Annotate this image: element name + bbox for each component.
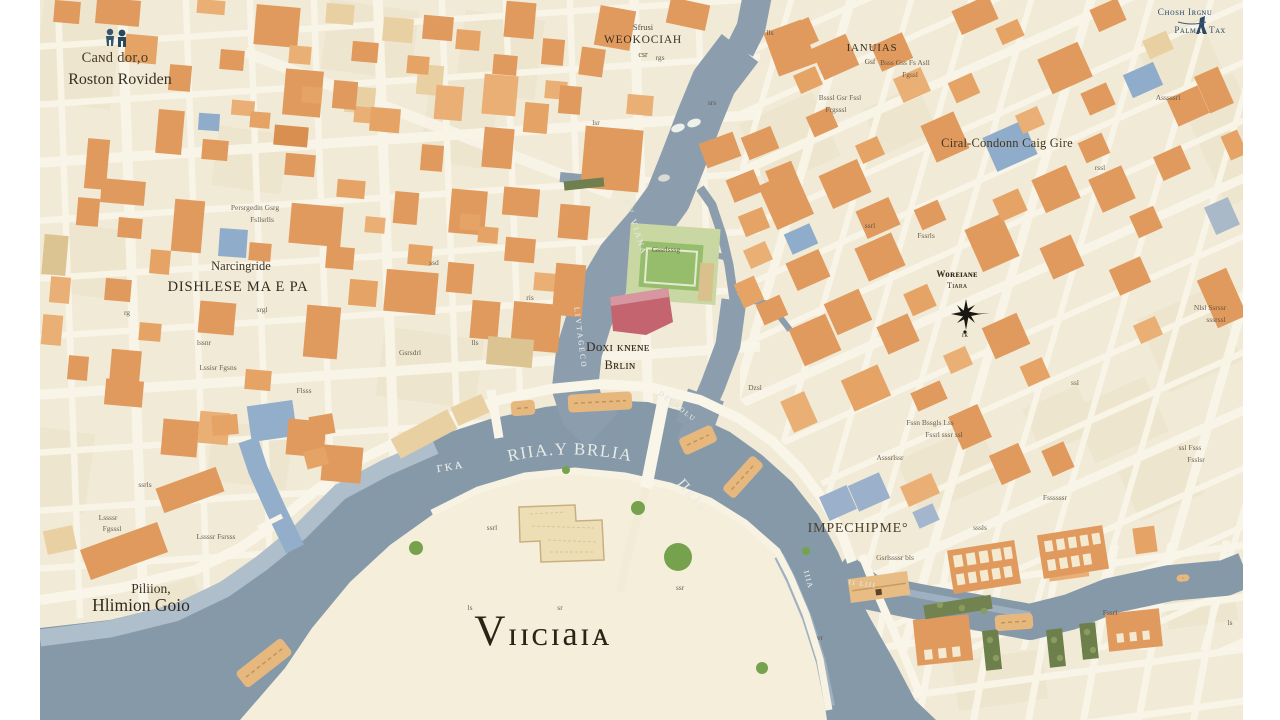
svg-text:Flsss: Flsss: [296, 386, 311, 395]
svg-text:srs: srs: [708, 98, 716, 107]
svg-text:Vɪɪᴄɪaɪᴀ: Vɪɪᴄɪaɪᴀ: [474, 608, 611, 655]
svg-text:lls: lls: [766, 28, 773, 37]
svg-text:Hlimion Goio: Hlimion Goio: [92, 595, 190, 615]
svg-text:Fssrls: Fssrls: [917, 231, 935, 240]
svg-text:Fssn Bssgls Lss: Fssn Bssgls Lss: [906, 418, 954, 427]
svg-text:ssl Fsss: ssl Fsss: [1179, 443, 1202, 452]
svg-text:Bʀʟɪɴ: Bʀʟɪɴ: [605, 358, 636, 372]
svg-text:Fssrl sssr ssl: Fssrl sssr ssl: [925, 430, 963, 439]
svg-text:ls: ls: [1227, 618, 1232, 627]
svg-text:Roston Roviden: Roston Roviden: [68, 71, 172, 88]
svg-text:ssrl: ssrl: [865, 221, 875, 230]
svg-text:Fssrl: Fssrl: [1103, 608, 1118, 617]
svg-text:Lssssr: Lssssr: [99, 513, 118, 522]
svg-text:Tɪᴀʀᴀ: Tɪᴀʀᴀ: [947, 280, 968, 290]
svg-text:Bsssl Gsr Fssl: Bsssl Gsr Fssl: [819, 93, 862, 102]
svg-text:ssrls: ssrls: [138, 480, 151, 489]
svg-text:csr: csr: [638, 50, 648, 59]
svg-text:ls: ls: [467, 603, 472, 612]
svg-text:Bsss Gss Fs Asll: Bsss Gss Fs Asll: [880, 58, 930, 67]
svg-text:sr: sr: [557, 603, 563, 612]
svg-text:Caɴd dor,o: Caɴd dor,o: [82, 50, 149, 66]
svg-text:Gssrlsssg: Gssrlsssg: [652, 245, 681, 254]
svg-text:IANUIAS: IANUIAS: [847, 42, 898, 54]
svg-text:Sfrusi: Sfrusi: [633, 22, 654, 32]
svg-text:Gsrsdrl: Gsrsdrl: [399, 348, 421, 357]
svg-text:lls: lls: [471, 338, 478, 347]
svg-text:Gsf: Gsf: [865, 57, 876, 66]
svg-text:Gsrlssssr bls: Gsrlssssr bls: [876, 553, 914, 562]
svg-text:lssnr: lssnr: [197, 338, 212, 347]
svg-text:sssls: sssls: [973, 523, 987, 532]
svg-text:Lssisr Fgsns: Lssisr Fgsns: [199, 363, 236, 372]
svg-text:Asssssrl: Asssssrl: [1156, 93, 1181, 102]
svg-text:Ciral-Condonn Caig Gire: Ciral-Condonn Caig Gire: [941, 136, 1073, 150]
svg-text:rssl: rssl: [1095, 163, 1105, 172]
svg-text:Dzsl: Dzsl: [748, 383, 762, 392]
svg-text:Lssssr Fsrsss: Lssssr Fsrsss: [197, 532, 236, 541]
svg-text:rk: rk: [962, 331, 968, 339]
svg-text:Persrgedin Gsrg: Persrgedin Gsrg: [231, 203, 280, 212]
svg-text:vr: vr: [817, 633, 824, 642]
svg-text:lsr: lsr: [592, 118, 600, 127]
svg-text:sssrssl: sssrssl: [1206, 315, 1225, 324]
svg-text:IMPECHIPME°: IMPECHIPME°: [808, 521, 909, 536]
svg-text:rgs: rgs: [655, 53, 664, 62]
svg-text:Asssrlssr: Asssrlssr: [876, 453, 904, 462]
svg-text:ssd: ssd: [429, 258, 439, 267]
svg-text:Fsllsrlls: Fsllsrlls: [250, 215, 274, 224]
svg-text:Frgsssl: Frgsssl: [825, 105, 846, 114]
svg-text:DISHLESE MA E PA: DISHLESE MA E PA: [168, 279, 309, 295]
svg-text:Doxɪ ᴋɴᴇɴᴇ: Doxɪ ᴋɴᴇɴᴇ: [586, 339, 650, 354]
svg-text:Fssssssr: Fssssssr: [1043, 493, 1068, 502]
svg-text:ssr: ssr: [676, 583, 685, 592]
svg-text:ssl: ssl: [1071, 378, 1079, 387]
svg-text:Fsslsr: Fsslsr: [1187, 455, 1205, 464]
svg-text:Piliion,: Piliion,: [131, 581, 170, 596]
svg-text:Fgsssl: Fgsssl: [103, 524, 122, 533]
svg-text:Fgssl: Fgssl: [902, 70, 918, 79]
svg-text:Narcingride: Narcingride: [211, 259, 271, 273]
svg-text:ssrl: ssrl: [487, 523, 497, 532]
svg-text:Nlsl Ssrssr: Nlsl Ssrssr: [1194, 303, 1227, 312]
svg-text:rg: rg: [124, 308, 130, 317]
svg-text:srgl: srgl: [256, 305, 267, 314]
svg-text:Woʀᴇɪᴀɴᴇ: Woʀᴇɪᴀɴᴇ: [936, 269, 978, 279]
svg-text:ris: ris: [526, 293, 534, 302]
svg-text:WEOKOCIAH: WEOKOCIAH: [604, 34, 682, 46]
